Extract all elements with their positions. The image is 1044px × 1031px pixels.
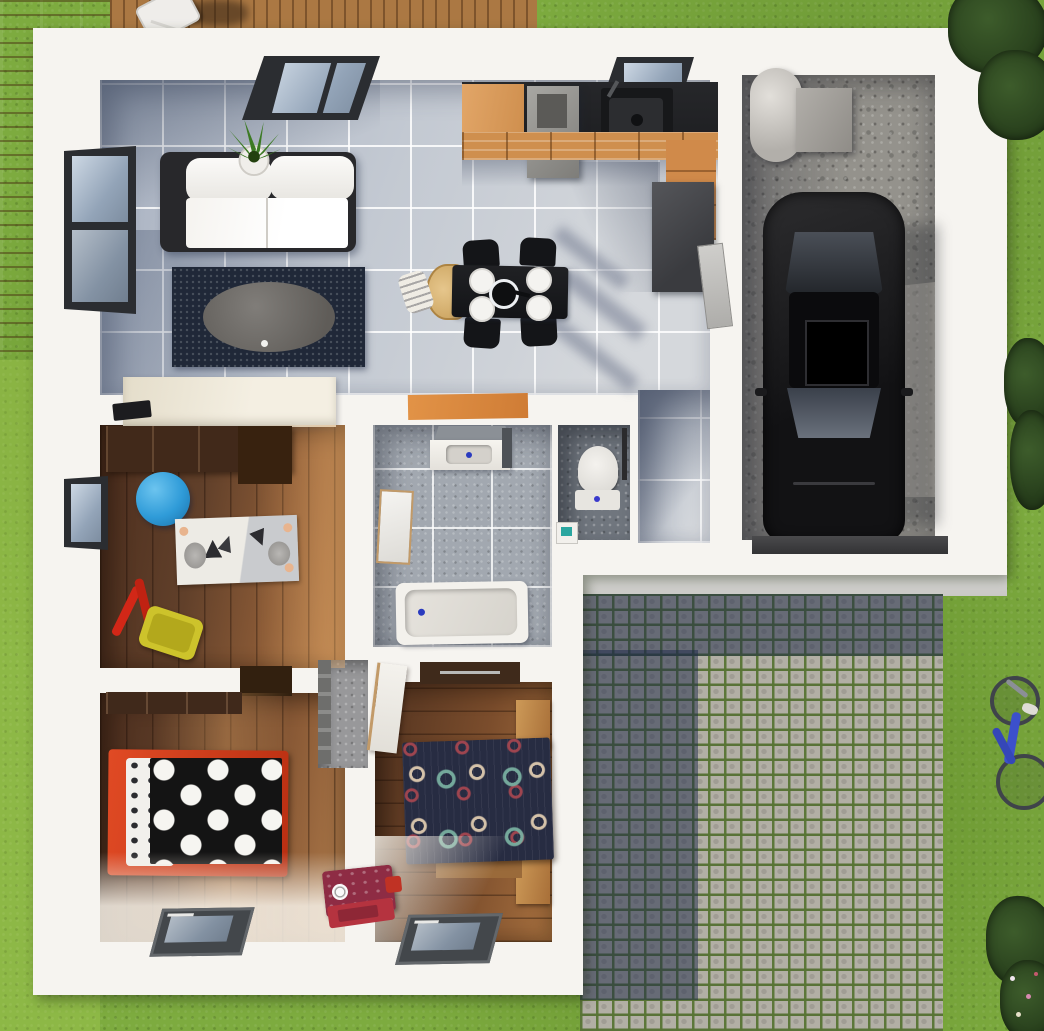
driveway-shadow-left <box>580 650 698 1000</box>
bedroom1-low-window <box>149 907 254 957</box>
car-sunroof <box>805 320 869 386</box>
bathtub <box>395 581 528 645</box>
plate <box>526 267 552 293</box>
toilet-flush-button <box>594 496 600 502</box>
car-rear-window <box>785 232 883 294</box>
flower <box>1034 972 1038 976</box>
entry-step <box>583 573 1007 596</box>
car-windshield <box>787 388 881 438</box>
bathtub-drain <box>418 609 425 616</box>
rug-motif-triangle <box>249 528 270 549</box>
shrub-flowering <box>1000 960 1044 1031</box>
kids-rug <box>175 515 299 585</box>
coffee-table <box>203 282 335 352</box>
car-mirror <box>901 388 913 396</box>
car-hood-line <box>793 482 875 485</box>
garage-door <box>752 536 948 554</box>
plate <box>526 295 552 321</box>
flower <box>1026 994 1031 999</box>
leaning-mirror <box>376 489 414 565</box>
tv-sideboard <box>123 377 336 427</box>
closet-nook-shelf <box>318 660 331 764</box>
hall-floor-shadow <box>638 390 710 543</box>
bedroom1-wardrobe <box>106 692 242 714</box>
vanity-counter <box>430 440 510 470</box>
bedroom2-wardrobe <box>420 662 520 684</box>
sofa-seat-split <box>266 198 268 248</box>
boiler-cylinder <box>750 68 802 162</box>
bike-wheel <box>996 754 1044 810</box>
wc-hand-basin <box>556 522 578 544</box>
wc-door <box>622 428 627 480</box>
rug-motif-face <box>184 542 207 569</box>
doormat-orange <box>408 393 528 420</box>
toilet-bowl <box>578 446 618 492</box>
car <box>763 192 905 542</box>
living-top-window <box>242 56 380 120</box>
bicycle <box>978 668 1044 808</box>
rug-motif-dot <box>179 527 188 536</box>
living-left-window <box>64 146 136 314</box>
kids-wardrobe-return <box>238 426 292 484</box>
driveway-shadow-top <box>580 594 943 656</box>
flower <box>1016 1012 1021 1017</box>
vanity-side-panel <box>502 428 512 468</box>
rug-motif-triangle <box>218 534 236 554</box>
shrub <box>978 50 1044 140</box>
kitchen-cabinet-top <box>462 84 524 134</box>
car-mirror <box>755 388 767 396</box>
rug-motif-dot <box>283 523 292 532</box>
vanity-drain <box>466 452 472 458</box>
kids-doorway <box>240 666 292 696</box>
potted-plant <box>238 138 272 162</box>
bed1-duvet <box>150 758 282 864</box>
floorplan-scene <box>0 0 1044 1031</box>
rug-motif-dot <box>284 563 293 572</box>
rug-motif-face <box>268 541 291 566</box>
kids-left-window <box>64 476 108 550</box>
bedroom2-low-window <box>395 913 503 965</box>
coffee-table-detail <box>261 340 268 347</box>
storage-box <box>796 88 852 152</box>
shrub <box>1010 410 1044 510</box>
dining-chair <box>519 237 556 267</box>
flower <box>1010 976 1015 981</box>
